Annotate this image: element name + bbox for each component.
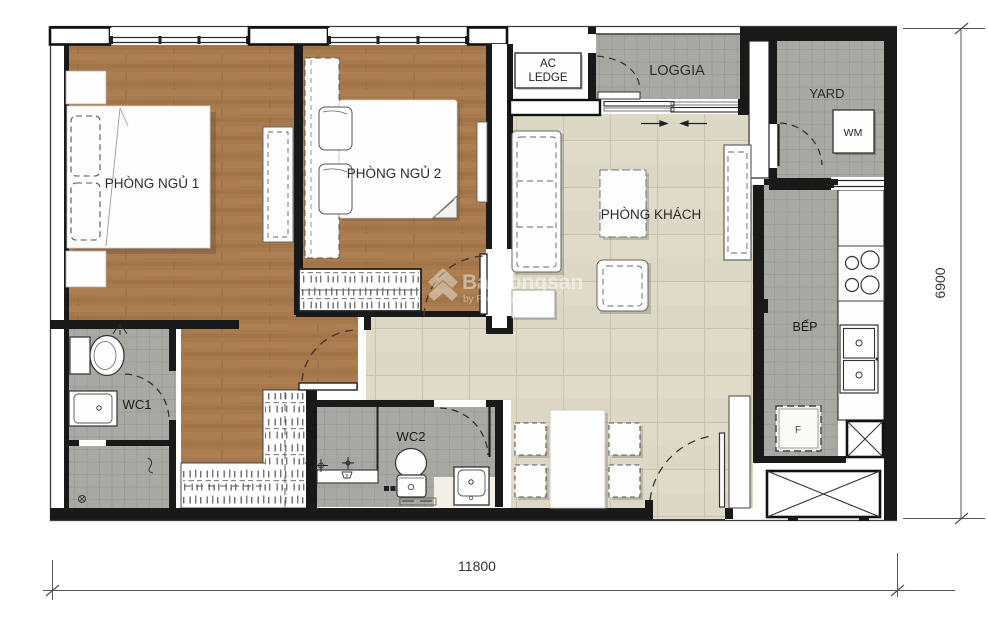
svg-text:WM: WM [844,127,863,139]
svg-text:WC2: WC2 [397,429,426,444]
svg-text:11800: 11800 [458,558,496,574]
svg-text:PHÒNG KHÁCH: PHÒNG KHÁCH [601,207,702,222]
svg-text:by PropertyGuru: by PropertyGuru [463,294,536,305]
svg-text:PHÒNG NGỦ 1: PHÒNG NGỦ 1 [105,176,200,191]
svg-text:LOGGIA: LOGGIA [649,63,705,79]
svg-text:Batdongsan: Batdongsan [462,271,583,294]
svg-text:6900: 6900 [932,267,948,298]
svg-text:BẾP: BẾP [792,319,817,334]
svg-text:AC: AC [540,58,556,70]
svg-text:LEDGE: LEDGE [529,72,568,84]
svg-text:YARD: YARD [809,86,844,101]
svg-text:WC1: WC1 [123,397,152,412]
svg-text:PHÒNG NGỦ 2: PHÒNG NGỦ 2 [347,166,442,181]
svg-text:F: F [795,425,801,436]
